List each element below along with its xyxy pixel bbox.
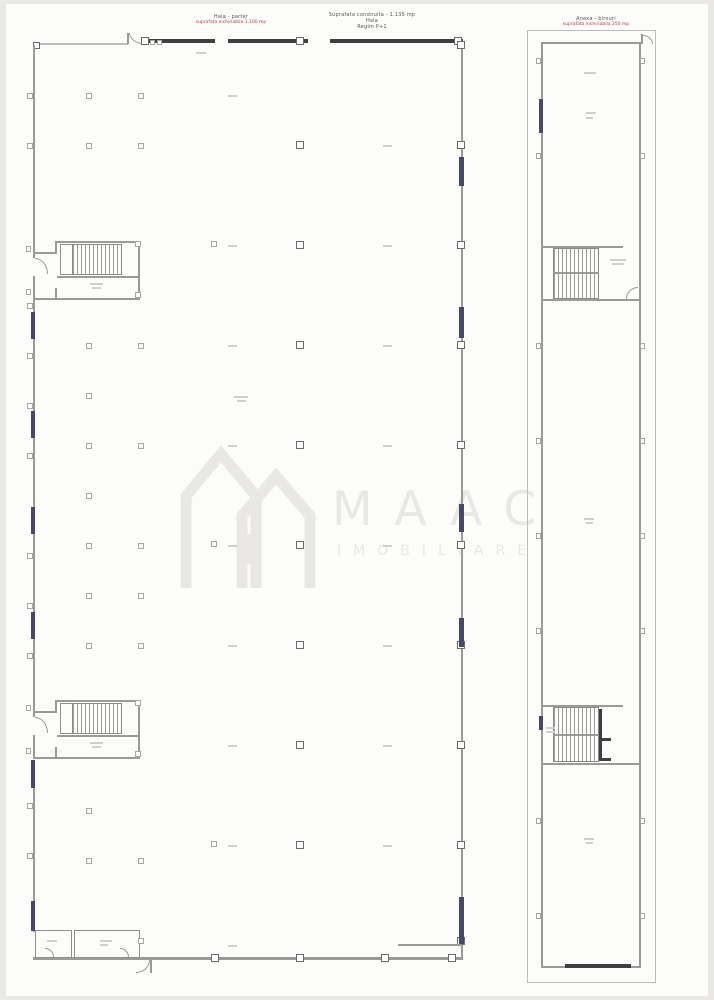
wall-segment [33, 757, 140, 759]
text-smudge [383, 845, 392, 847]
column-marker [536, 58, 541, 64]
column-marker [457, 841, 465, 849]
window-marker [31, 411, 35, 438]
plan-border [527, 30, 656, 983]
column-marker [27, 853, 33, 859]
column-marker [135, 241, 141, 247]
text-smudge [228, 245, 237, 247]
wall-segment [57, 735, 140, 737]
wall-segment [33, 276, 35, 300]
wall-segment [55, 700, 140, 702]
column-marker [536, 628, 541, 634]
column-marker [296, 841, 304, 849]
column-marker [448, 954, 456, 962]
column-marker [135, 751, 141, 757]
text-smudge [237, 400, 246, 402]
column-marker [457, 541, 465, 549]
column-marker [536, 913, 541, 919]
text-smudge [612, 263, 624, 265]
text-smudge [228, 845, 237, 847]
column-marker [211, 841, 217, 847]
column-marker [86, 93, 92, 99]
text-smudge [383, 645, 392, 647]
column-marker [138, 343, 144, 349]
text-smudge [100, 940, 112, 942]
column-marker [211, 541, 217, 547]
title-line-red: suprafata inchiriabila 1.100 mp [185, 20, 277, 26]
column-marker [536, 818, 541, 824]
wall-segment [541, 42, 641, 44]
window-marker [459, 618, 464, 647]
column-marker [86, 643, 92, 649]
text-smudge [546, 727, 555, 729]
column-marker [381, 954, 389, 962]
column-marker [27, 353, 33, 359]
column-marker [27, 403, 33, 409]
column-marker [141, 37, 149, 45]
window-marker [31, 760, 35, 788]
text-smudge [584, 518, 594, 520]
text-smudge [228, 345, 237, 347]
column-marker [457, 741, 465, 749]
text-smudge [228, 95, 237, 97]
column-marker [86, 343, 92, 349]
column-marker [135, 700, 141, 706]
text-smudge [90, 742, 103, 744]
title-line-red: suprafata inchiriabila 250 mp [550, 22, 642, 28]
text-smudge [228, 545, 237, 547]
column-marker [296, 37, 304, 45]
wall-segment [553, 272, 599, 274]
wall-segment-dark [599, 709, 602, 761]
text-smudge [90, 283, 103, 285]
staircase-hatch [72, 703, 122, 734]
column-marker [138, 858, 144, 864]
window-marker [31, 507, 35, 534]
text-smudge [228, 945, 237, 947]
text-smudge [546, 731, 555, 733]
column-marker [536, 438, 541, 444]
column-marker [26, 705, 31, 711]
wall-segment [543, 299, 640, 301]
column-marker [27, 653, 33, 659]
column-marker [27, 453, 33, 459]
column-marker [86, 543, 92, 549]
column-marker [27, 603, 33, 609]
text-smudge [92, 746, 101, 748]
text-smudge [586, 842, 593, 844]
right-plan-title-block: Anexa - birouri suprafata inchiriabila 2… [550, 16, 642, 28]
wall-segment [150, 960, 152, 973]
column-marker [86, 143, 92, 149]
column-marker [296, 141, 304, 149]
text-smudge [47, 940, 57, 942]
column-marker [640, 628, 645, 634]
column-marker [211, 954, 219, 962]
wall-segment [33, 300, 35, 700]
window-marker [31, 312, 35, 339]
window-marker [539, 716, 543, 730]
column-marker [296, 641, 304, 649]
column-marker [296, 541, 304, 549]
column-marker [86, 493, 92, 499]
column-marker [26, 289, 31, 295]
column-marker [640, 818, 645, 824]
column-marker [27, 803, 33, 809]
column-marker [640, 58, 645, 64]
column-marker [86, 808, 92, 814]
text-smudge [234, 396, 248, 398]
column-marker [296, 954, 304, 962]
text-smudge [586, 522, 593, 524]
column-marker [86, 393, 92, 399]
wall-segment [33, 700, 35, 717]
column-marker [640, 913, 645, 919]
text-smudge [100, 944, 108, 946]
wall-segment [33, 735, 35, 759]
column-marker [536, 153, 541, 159]
column-marker [150, 40, 155, 45]
wall-segment [639, 42, 641, 968]
wall-segment [398, 944, 462, 946]
column-marker [27, 303, 33, 309]
text-smudge [383, 345, 392, 347]
window-marker [459, 157, 464, 186]
column-marker [640, 533, 645, 539]
column-marker [138, 543, 144, 549]
left-plan-title-block-2: Suprafata construita - 1.135 mp Hala Reg… [322, 12, 422, 30]
text-smudge [383, 545, 392, 547]
wall-segment [553, 734, 599, 736]
column-marker [138, 938, 144, 944]
text-smudge [584, 72, 596, 74]
window-marker [459, 504, 464, 532]
wall-segment [33, 43, 128, 45]
column-marker [135, 292, 141, 298]
staircase-hatch [72, 244, 122, 275]
column-marker [640, 438, 645, 444]
wall-segment [33, 241, 35, 258]
wall-segment [33, 45, 35, 242]
plan-linework-layer [0, 0, 714, 1000]
column-marker [26, 748, 31, 754]
column-marker [27, 143, 33, 149]
column-marker [86, 593, 92, 599]
wall-segment-dark [599, 738, 611, 741]
column-marker [296, 241, 304, 249]
window-marker [31, 901, 35, 931]
column-marker [86, 443, 92, 449]
window-marker [31, 612, 35, 639]
column-marker [457, 341, 465, 349]
text-smudge [383, 245, 392, 247]
window-marker [539, 99, 543, 133]
wall-segment [33, 711, 57, 713]
title-line-dark: Regim P+1 [322, 24, 422, 30]
wall-segment-dark [599, 758, 611, 761]
column-marker [296, 341, 304, 349]
column-marker [457, 241, 465, 249]
column-marker [157, 40, 162, 45]
text-smudge [383, 445, 392, 447]
wall-segment [57, 276, 140, 278]
floorplan-canvas: MAAC IMOBILIARE Hala - parter suprafata … [0, 0, 714, 1000]
wall-segment [55, 747, 57, 759]
column-marker [138, 93, 144, 99]
wall-segment [33, 252, 57, 254]
text-smudge [228, 645, 237, 647]
wall-segment [55, 241, 140, 243]
column-marker [138, 143, 144, 149]
column-marker [86, 858, 92, 864]
text-smudge [92, 287, 101, 289]
window-marker [459, 897, 464, 944]
column-marker [640, 343, 645, 349]
text-smudge [610, 259, 626, 261]
column-marker [138, 593, 144, 599]
wall-segment [541, 42, 543, 968]
wall-segment-dark [145, 39, 215, 43]
column-marker [536, 343, 541, 349]
column-marker [138, 643, 144, 649]
door-arc [35, 258, 48, 274]
text-smudge [383, 745, 392, 747]
door-arc [35, 717, 48, 733]
column-marker [640, 153, 645, 159]
text-smudge [383, 145, 392, 147]
column-marker [536, 533, 541, 539]
column-marker [211, 241, 217, 247]
window-marker [459, 307, 464, 338]
text-smudge [584, 838, 594, 840]
column-marker [296, 441, 304, 449]
column-marker [26, 246, 31, 252]
column-marker [457, 441, 465, 449]
wall-segment [543, 763, 640, 765]
column-marker [27, 553, 33, 559]
left-plan-title-block-1: Hala - parter suprafata inchiriabila 1.1… [185, 14, 277, 26]
column-marker [138, 443, 144, 449]
text-smudge [586, 117, 593, 119]
column-marker [457, 41, 465, 49]
wall-segment-dark [330, 39, 463, 43]
wall-segment [55, 288, 57, 300]
text-smudge [196, 52, 206, 54]
wall-segment [33, 298, 140, 300]
column-marker [27, 93, 33, 99]
text-smudge [228, 445, 237, 447]
text-smudge [586, 112, 596, 114]
column-marker [296, 741, 304, 749]
column-marker [457, 141, 465, 149]
door-arc [136, 960, 150, 973]
wall-segment-dark [565, 964, 631, 968]
text-smudge [228, 745, 237, 747]
